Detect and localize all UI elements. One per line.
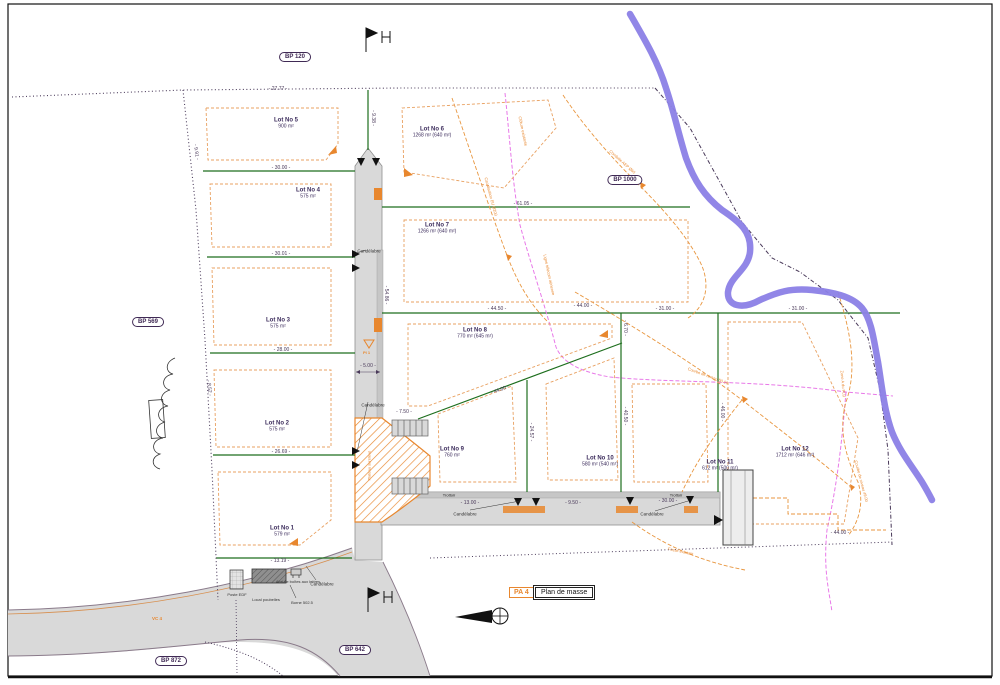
existing-building	[723, 470, 753, 545]
lot-label-11: Lot No 11612 m² (500 m²)	[702, 460, 738, 473]
pi-label: PI 1	[363, 350, 370, 355]
dimension: 30.01	[272, 251, 291, 257]
lot-label-5: Lot No 5900 m²	[274, 118, 298, 131]
candelabre-label: Candélabre	[361, 403, 384, 408]
hedge-line	[149, 358, 175, 469]
dimension: 44.00	[574, 303, 593, 309]
dimension: 61.05	[514, 201, 533, 207]
dimension: 9.38	[370, 110, 376, 126]
lot-label-6: Lot No 61268 m² (640 m²)	[413, 127, 452, 140]
dimension: 13.00	[461, 500, 480, 506]
dimension: 30.00	[272, 165, 291, 171]
dimension: 27.77	[269, 86, 288, 92]
plateau-label: Plateau surélevé	[367, 451, 372, 481]
dimension: 31.00	[789, 306, 808, 312]
lot-label-8: Lot No 8770 m² (645 m²)	[457, 328, 493, 341]
north-arrow-icon	[455, 608, 508, 624]
network-arrows	[506, 182, 855, 491]
road-edge-mark	[374, 188, 382, 200]
trottoir-label: Trottoir	[443, 493, 456, 498]
lot-corner-arrows	[289, 146, 608, 546]
road-ref-bp120: BP 120	[279, 52, 311, 62]
dimension: 54.86	[383, 286, 389, 305]
lot-label-9: Lot No 9760 m²	[440, 447, 464, 460]
dimension: 24.57	[528, 423, 534, 442]
abri-lettres-label: Abri de boîtes aux lettres	[275, 580, 321, 584]
borne-label: Borne 502.5	[291, 601, 313, 605]
site-plan-sheet: Lot No 1579 m² Lot No 2575 m² Lot No 357…	[0, 0, 1000, 685]
candelabre-label: Candélabre	[640, 512, 663, 517]
trottoir-label: Trottoir	[670, 493, 683, 498]
dimension: 9.50	[565, 500, 581, 506]
dimension: 31.00	[656, 306, 675, 312]
sheet-frame	[8, 4, 992, 677]
lamp-pad	[684, 506, 698, 513]
site-plan-drawing	[0, 0, 1000, 685]
curved-road	[8, 548, 430, 676]
lot-label-12: Lot No 121712 m² (646 m²)	[776, 447, 815, 460]
dimension: 13.19	[271, 558, 290, 564]
dimension: 44.50	[488, 306, 507, 312]
dimension: 28.00	[274, 347, 293, 353]
dimension: 44.00	[831, 530, 850, 536]
local-poubelles-label: Local poubelles	[252, 598, 280, 602]
lot-label-7: Lot No 71266 m² (640 m²)	[418, 223, 457, 236]
lot-label-3: Lot No 3575 m²	[266, 318, 290, 331]
candelabre-label: Candélabre	[357, 249, 380, 254]
dimension: 40.50	[622, 407, 628, 426]
sheet-code-badge: PA 4	[509, 587, 534, 598]
dimension: 26.69	[272, 449, 291, 455]
road-name-vc4: VC 4	[152, 616, 162, 621]
edf-substation	[230, 570, 243, 589]
river	[630, 14, 932, 500]
road-edge-mark	[374, 318, 382, 332]
vertical-road-sidewalk	[377, 250, 383, 418]
dimension: 7.50	[396, 409, 412, 415]
dimension: 46.00	[719, 403, 725, 422]
road-ref-bp872: BP 872	[155, 656, 187, 666]
lot-label-1: Lot No 1579 m²	[270, 526, 294, 539]
dimension: 5.00	[360, 363, 376, 369]
lot-label-2: Lot No 2575 m²	[265, 421, 289, 434]
lamp-pad	[616, 506, 638, 513]
road-ref-bp642: BP 642	[339, 645, 371, 655]
poste-edf-label: Poste EDF	[227, 593, 246, 597]
section-flag-top	[366, 28, 390, 52]
lot-label-10: Lot No 10580 m² (540 m²)	[582, 456, 618, 469]
road-ref-bp1000: BP 1000	[607, 175, 642, 185]
lamp-pad	[503, 506, 545, 513]
lot-setback-boundaries	[206, 100, 858, 545]
dimension: 30.00	[659, 498, 678, 504]
road-ref-bp569: BP 569	[132, 317, 164, 327]
sheet-title-box: Plan de masse	[535, 587, 593, 598]
lot-label-4: Lot No 4575 m²	[296, 188, 320, 201]
dimension: 6.70	[622, 320, 628, 336]
candelabre-label: Candélabre	[453, 512, 476, 517]
